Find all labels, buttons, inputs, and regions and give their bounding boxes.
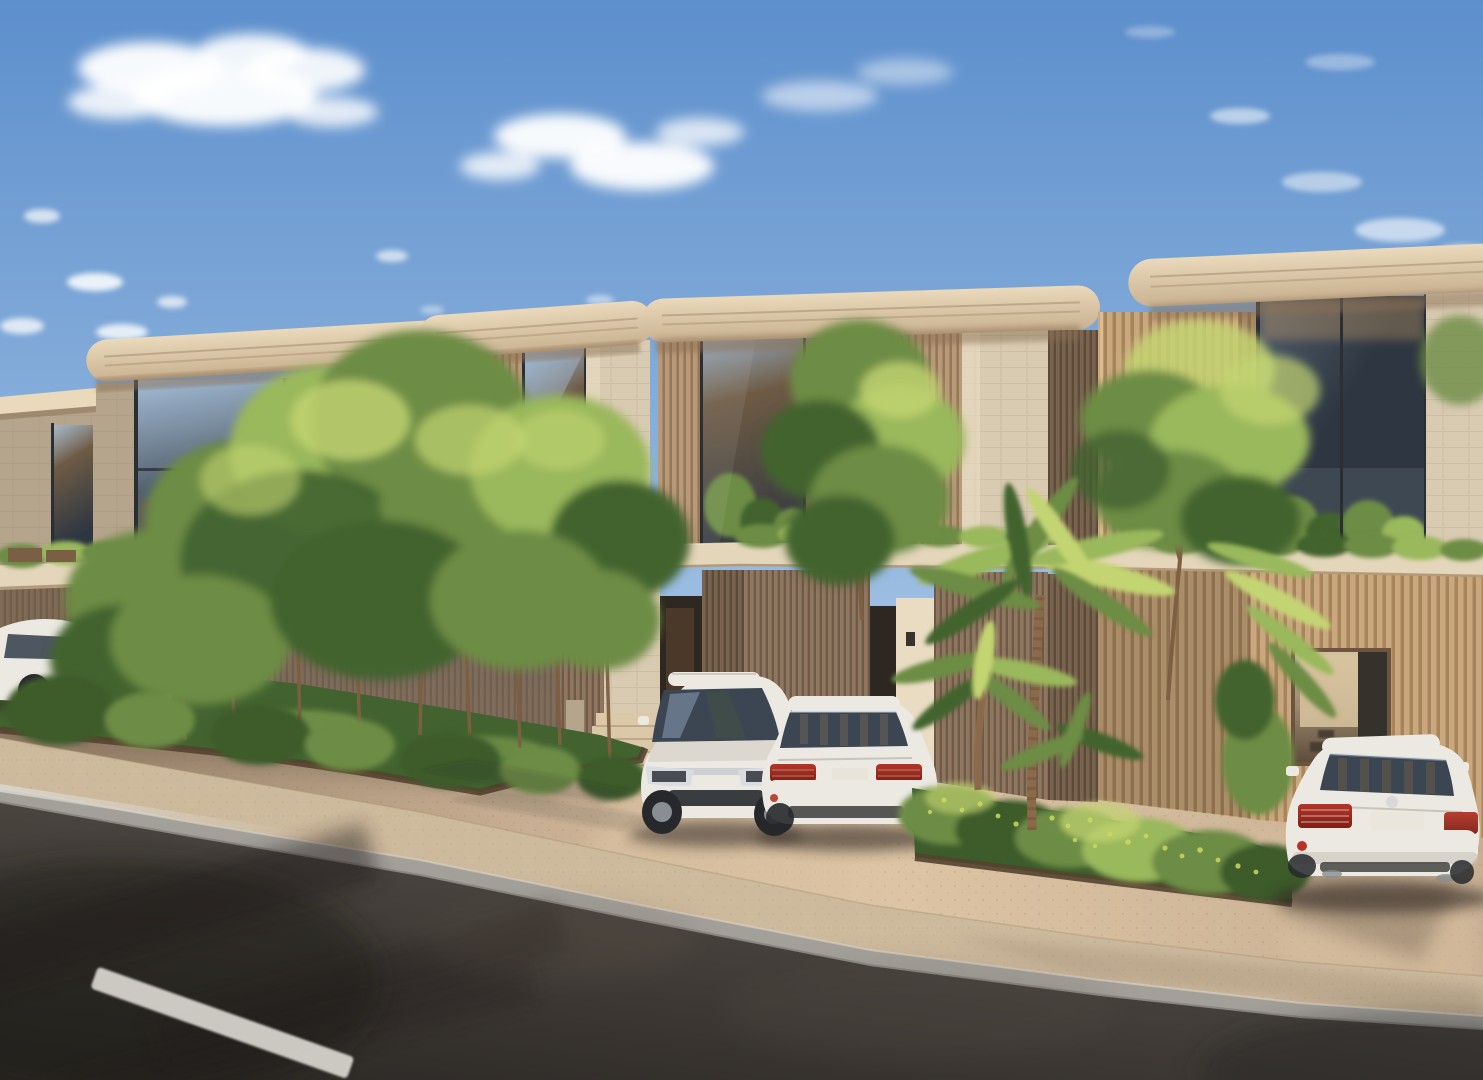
architectural-render — [0, 0, 1483, 1080]
scene — [0, 0, 1483, 1080]
